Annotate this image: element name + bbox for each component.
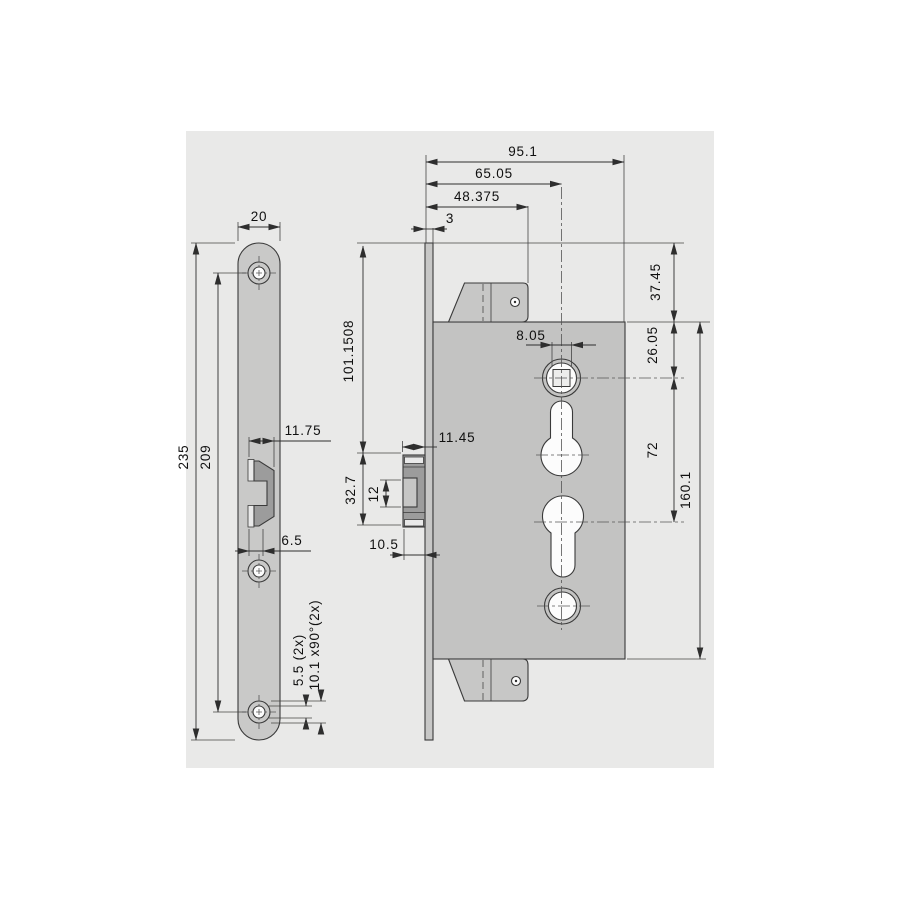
- dim-bolt-head-height: 12: [366, 486, 381, 503]
- dim-plate-width: 20: [251, 209, 268, 224]
- dim-bolt-height: 32.7: [343, 475, 358, 504]
- dim-keeper-lip: 6.5: [281, 533, 302, 548]
- dim-backset: 65.05: [475, 166, 513, 181]
- dim-plate-height: 235: [176, 445, 191, 470]
- dim-case-to-spindle: 26.05: [645, 326, 660, 364]
- dim-bolt-throw: 11.45: [439, 430, 476, 445]
- dim-plate-hole-dia: 5.5 (2x): [291, 634, 306, 686]
- dim-spindle-to-cylinder: 72: [645, 442, 660, 459]
- dim-plate-hole-spacing: 209: [198, 445, 213, 470]
- lock-case-body: [433, 322, 625, 659]
- dim-case-depth: 95.1: [508, 144, 537, 159]
- dim-plate-countersink: 10.1 x90°(2x): [307, 600, 322, 691]
- dim-faceplate-thickness: 3: [446, 211, 454, 226]
- dim-bolt-head-throw: 10.5: [369, 537, 398, 552]
- dim-keeper-width: 11.75: [285, 423, 322, 438]
- dim-case-height: 160.1: [678, 471, 693, 509]
- faceplate-edge: [425, 243, 433, 740]
- dead-bolt: [403, 455, 425, 527]
- mortise-lock-drawing: 20 235 209 11.75 6.5 5.5 (2x): [0, 0, 900, 900]
- faceplate-front-view: [238, 243, 280, 740]
- dim-spindle-square: 8.05: [516, 328, 545, 343]
- dim-top-to-case: 37.45: [648, 263, 663, 301]
- dim-tab-depth: 48.375: [454, 189, 500, 204]
- dim-top-to-bolt: 101.1508: [341, 320, 356, 383]
- technical-drawing-page: 20 235 209 11.75 6.5 5.5 (2x): [0, 0, 900, 900]
